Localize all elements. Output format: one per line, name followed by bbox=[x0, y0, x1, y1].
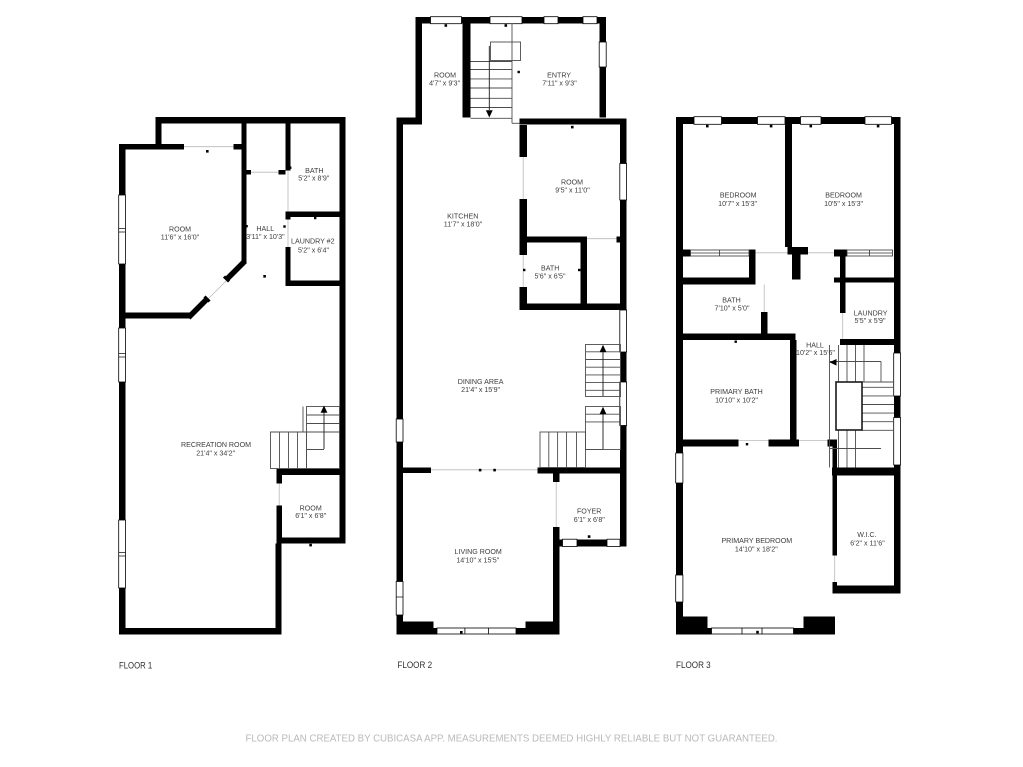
svg-text:LAUNDRY #2: LAUNDRY #2 bbox=[291, 238, 335, 246]
svg-text:FLOOR 3: FLOOR 3 bbox=[676, 660, 711, 671]
svg-text:W.I.C.: W.I.C. bbox=[857, 531, 876, 539]
svg-text:5'2" x 6'4": 5'2" x 6'4" bbox=[298, 247, 329, 255]
svg-text:6'1" x 6'8": 6'1" x 6'8" bbox=[574, 516, 605, 524]
svg-text:FLOOR PLAN CREATED BY CUBICASA: FLOOR PLAN CREATED BY CUBICASA APP. MEAS… bbox=[246, 734, 778, 745]
svg-text:10'5" x 15'3": 10'5" x 15'3" bbox=[824, 200, 863, 208]
svg-text:BEDROOM: BEDROOM bbox=[825, 192, 862, 200]
svg-text:FLOOR 1: FLOOR 1 bbox=[119, 660, 152, 671]
svg-text:5'2" x 8'9": 5'2" x 8'9" bbox=[298, 175, 329, 183]
svg-text:4'7" x 9'3": 4'7" x 9'3" bbox=[429, 79, 460, 87]
svg-text:PRIMARY BEDROOM: PRIMARY BEDROOM bbox=[721, 537, 792, 545]
svg-text:KITCHEN: KITCHEN bbox=[447, 213, 478, 221]
svg-text:21'4" x 15'9": 21'4" x 15'9" bbox=[461, 386, 500, 394]
svg-text:3'11" x 10'3": 3'11" x 10'3" bbox=[246, 233, 285, 241]
svg-text:10'2" x 15'6": 10'2" x 15'6" bbox=[796, 349, 835, 357]
svg-text:FLOOR 2: FLOOR 2 bbox=[397, 660, 432, 671]
svg-text:5'5" x 5'9": 5'5" x 5'9" bbox=[854, 317, 885, 325]
svg-text:BATH: BATH bbox=[722, 296, 740, 304]
svg-text:DINING AREA: DINING AREA bbox=[458, 378, 504, 386]
svg-text:14'10" x 15'5": 14'10" x 15'5" bbox=[456, 556, 499, 564]
svg-text:7'11" x 9'3": 7'11" x 9'3" bbox=[542, 79, 577, 87]
svg-text:9'5" x 11'0": 9'5" x 11'0" bbox=[555, 187, 590, 195]
svg-text:14'10" x 18'2": 14'10" x 18'2" bbox=[735, 545, 778, 553]
svg-text:ROOM: ROOM bbox=[169, 226, 191, 234]
svg-text:11'6" x 16'0": 11'6" x 16'0" bbox=[161, 233, 200, 241]
svg-text:HALL: HALL bbox=[256, 225, 274, 233]
svg-text:6'1" x 6'8": 6'1" x 6'8" bbox=[295, 512, 326, 520]
svg-text:10'7" x 15'3": 10'7" x 15'3" bbox=[718, 200, 757, 208]
svg-text:21'4" x 34'2": 21'4" x 34'2" bbox=[196, 450, 235, 458]
svg-text:ENTRY: ENTRY bbox=[547, 72, 571, 80]
svg-text:LIVING ROOM: LIVING ROOM bbox=[455, 548, 502, 556]
svg-text:7'10" x 5'0": 7'10" x 5'0" bbox=[715, 305, 750, 313]
svg-text:ROOM: ROOM bbox=[434, 72, 456, 80]
svg-text:11'7" x 18'0": 11'7" x 18'0" bbox=[444, 221, 483, 229]
svg-text:ROOM: ROOM bbox=[561, 178, 583, 186]
svg-text:RECREATION ROOM: RECREATION ROOM bbox=[181, 441, 251, 449]
svg-text:BEDROOM: BEDROOM bbox=[720, 192, 757, 200]
svg-text:FOYER: FOYER bbox=[577, 508, 601, 516]
svg-text:6'2" x 11'6": 6'2" x 11'6" bbox=[850, 539, 885, 547]
svg-text:10'10" x 10'2": 10'10" x 10'2" bbox=[715, 396, 758, 404]
svg-text:PRIMARY BATH: PRIMARY BATH bbox=[710, 388, 762, 396]
svg-text:5'6" x 6'5": 5'6" x 6'5" bbox=[534, 273, 565, 281]
svg-text:BATH: BATH bbox=[541, 265, 559, 273]
